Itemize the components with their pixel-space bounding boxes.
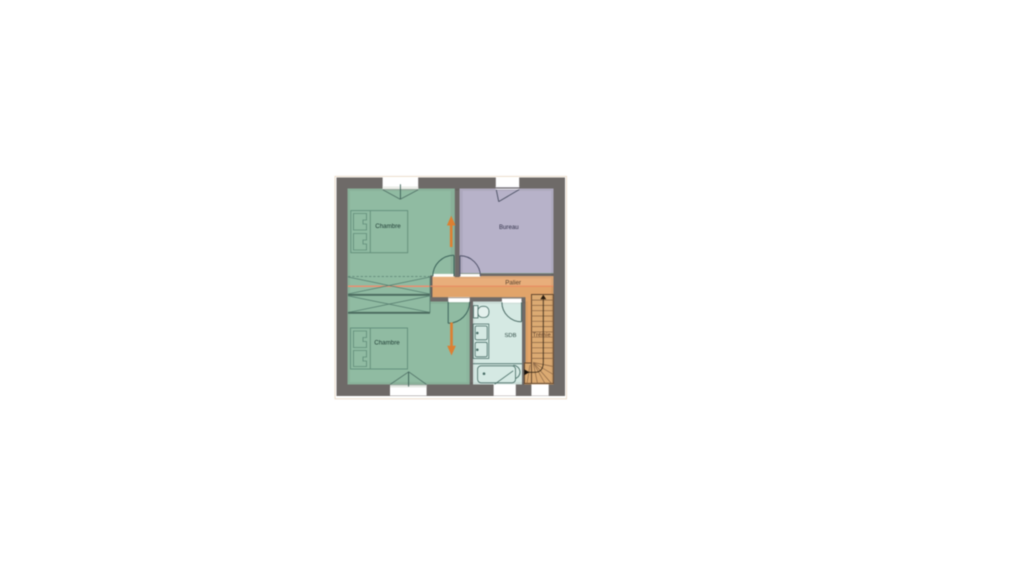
svg-text:Trémie: Trémie xyxy=(533,333,551,339)
svg-text:SDB: SDB xyxy=(505,333,517,339)
svg-text:Palier: Palier xyxy=(505,280,521,287)
svg-text:Bureau: Bureau xyxy=(499,224,519,231)
svg-text:Chambre: Chambre xyxy=(374,340,400,347)
svg-text:Chambre: Chambre xyxy=(375,223,401,230)
